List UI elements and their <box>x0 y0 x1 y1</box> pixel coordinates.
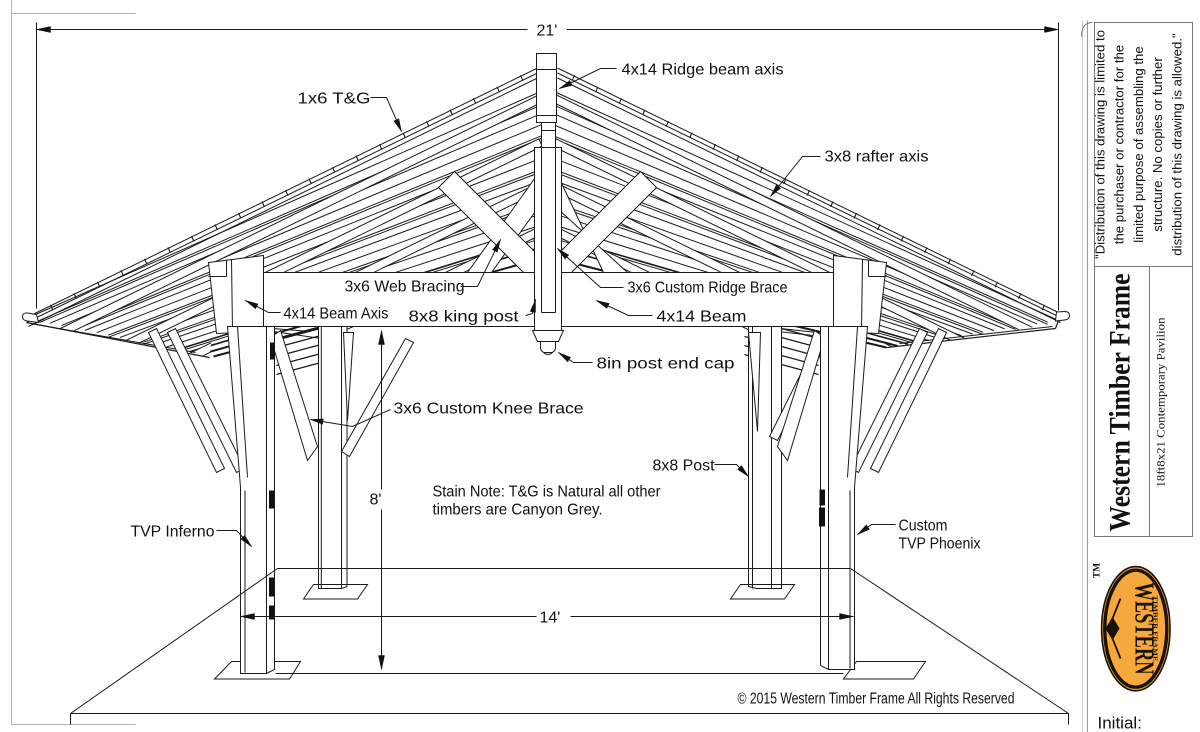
svg-text:Initial:: Initial: <box>1098 714 1142 732</box>
svg-text:8': 8' <box>370 492 382 509</box>
svg-text:Custom: Custom <box>899 518 948 535</box>
svg-text:structure. No copies or furth: structure. No copies or further <box>1150 57 1165 232</box>
svg-text:3x6 Custom Ridge Brace: 3x6 Custom Ridge Brace <box>628 280 788 297</box>
svg-text:timbers are Canyon Grey.: timbers are Canyon Grey. <box>433 502 603 519</box>
svg-text:3x6 Web Bracing: 3x6 Web Bracing <box>345 279 465 296</box>
svg-text:14': 14' <box>540 610 561 627</box>
svg-text:TIMBER FRAME: TIMBER FRAME <box>1152 596 1159 662</box>
svg-text:3x6 Custom Knee Brace: 3x6 Custom Knee Brace <box>394 401 584 418</box>
svg-text:© 2015 Western Timber Frame Al: © 2015 Western Timber Frame All Rights R… <box>738 691 1015 708</box>
svg-text:8in post end cap: 8in post end cap <box>597 356 735 373</box>
svg-text:Stain Note: T&G is Natural all: Stain Note: T&G is Natural all other <box>433 484 662 501</box>
svg-text:Western Timber Frame: Western Timber Frame <box>1104 274 1137 532</box>
svg-text:21': 21' <box>537 23 558 40</box>
svg-text:"Distribution of this drawing: "Distribution of this drawing is limited… <box>1093 30 1108 259</box>
svg-text:the purchaser or contractor fo: the purchaser or contractor for the <box>1112 45 1127 244</box>
svg-text:8x8 Post: 8x8 Post <box>653 458 716 475</box>
svg-text:TM: TM <box>1093 563 1103 578</box>
svg-text:TVP Phoenix: TVP Phoenix <box>899 536 981 553</box>
svg-text:distribution of this drawing i: distribution of this drawing is allowed.… <box>1169 33 1184 256</box>
svg-text:TVP Inferno: TVP Inferno <box>131 524 215 541</box>
svg-text:limited purpose of assembling: limited purpose of assembling the <box>1131 46 1146 242</box>
svg-text:4x14 Beam Axis: 4x14 Beam Axis <box>284 306 389 323</box>
svg-text:1x6 T&G: 1x6 T&G <box>298 91 371 108</box>
svg-text:18ft8x21 Contemporary Pavilion: 18ft8x21 Contemporary Pavilion <box>1154 318 1168 488</box>
svg-text:3x8 rafter axis: 3x8 rafter axis <box>825 149 929 166</box>
svg-text:8x8 king post: 8x8 king post <box>409 309 520 326</box>
svg-text:4x14 Beam: 4x14 Beam <box>657 309 747 326</box>
svg-text:4x14 Ridge beam axis: 4x14 Ridge beam axis <box>622 62 784 79</box>
